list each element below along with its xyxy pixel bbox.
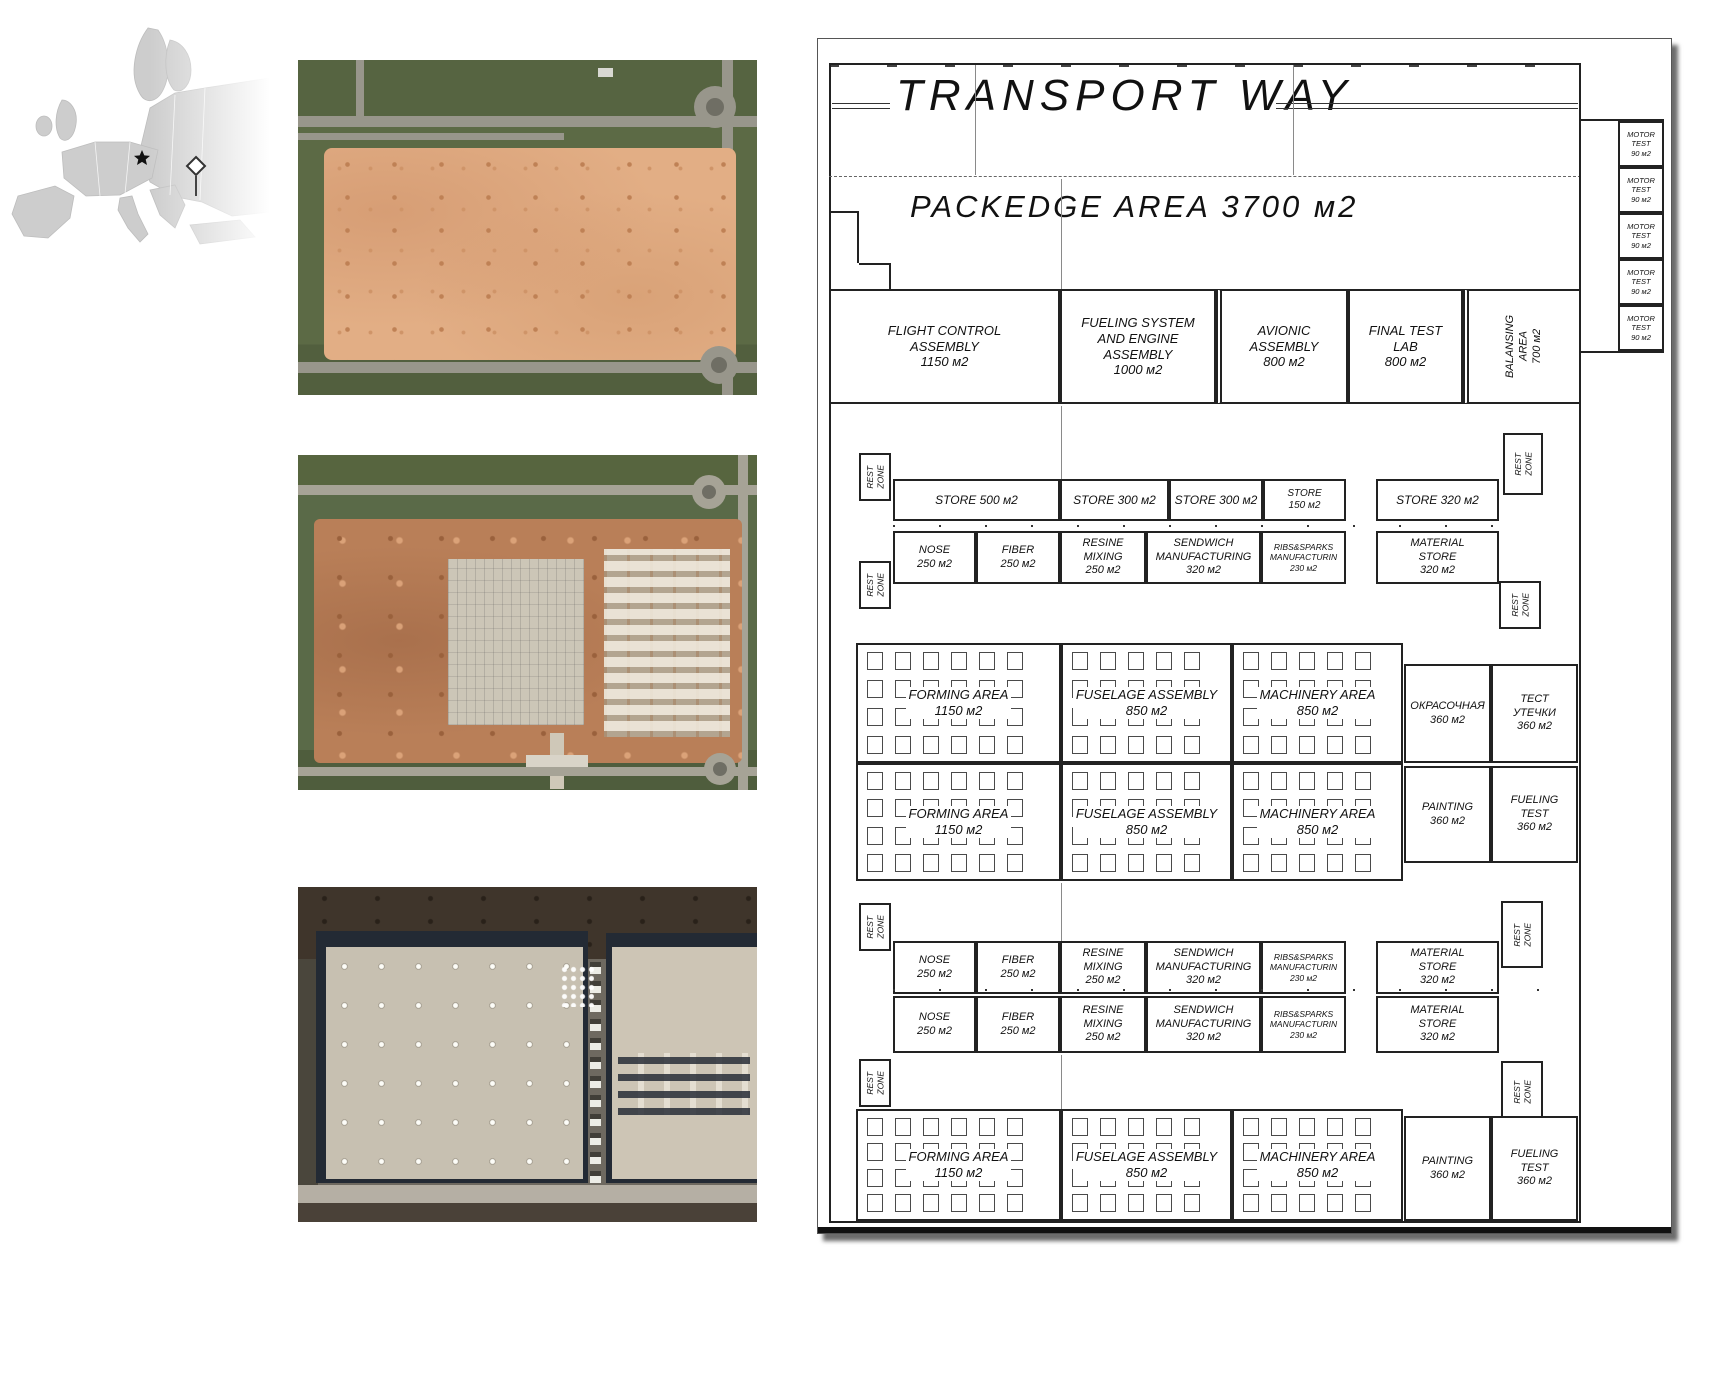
room-store-150: STORE 150 м2: [1263, 479, 1346, 521]
room-motor-test: MOTOR TEST 90 м2: [1618, 213, 1664, 259]
room-sendwich-manufacturing: SENDWICH MANUFACTURING 320 м2: [1146, 941, 1261, 994]
room-resine-mixing: RESINE MIXING 250 м2: [1060, 531, 1146, 584]
room-resine-mixing: RESINE MIXING 250 м2: [1060, 941, 1146, 994]
cleared-dirt-area: [324, 148, 736, 360]
road: [298, 767, 757, 776]
room-okrasochnaya: ОКРАСОЧНАЯ 360 м2: [1404, 664, 1491, 763]
room-motor-test: MOTOR TEST 90 м2: [1618, 259, 1664, 305]
roof-vents: [618, 1053, 750, 1115]
room-nose: NOSE 250 м2: [893, 996, 976, 1053]
wall-line: [1293, 65, 1294, 175]
roundabout: [700, 346, 738, 384]
room-motor-test: MOTOR TEST 90 м2: [1618, 121, 1664, 167]
room-fuselage-assembly: FUSELAGE ASSEMBLY 850 м2: [1061, 1109, 1232, 1221]
room-forming-area: FORMING AREA 1150 м2: [856, 763, 1061, 881]
site-buildings: [526, 755, 588, 767]
roundabout: [692, 475, 726, 509]
roundabout: [694, 86, 736, 128]
rest-zone: REST ZONE: [1503, 433, 1543, 495]
room-painting: PAINTING 360 м2: [1404, 766, 1491, 863]
wall-ticks: [829, 63, 1581, 67]
room-ribs-sparks-manufacturing: RIBS&SPARKS MANUFACTURIN 230 м2: [1261, 996, 1346, 1053]
rest-zone: REST ZONE: [1501, 1061, 1543, 1123]
wall-step: [859, 263, 891, 289]
satellite-photo-cleared-site: [298, 60, 757, 395]
rest-zone: REST ZONE: [859, 453, 891, 501]
rest-zone: REST ZONE: [859, 1059, 891, 1107]
room-material-store: MATERIAL STORE 320 м2: [1376, 531, 1499, 584]
room-motor-test: MOTOR TEST 90 м2: [1618, 167, 1664, 213]
rest-zone: REST ZONE: [859, 903, 891, 951]
pallet-stacks: [560, 965, 594, 1007]
room-sendwich-manufacturing: SENDWICH MANUFACTURING 320 м2: [1146, 996, 1261, 1053]
road: [298, 362, 757, 373]
road: [356, 60, 364, 120]
road: [298, 116, 757, 127]
small-building: [598, 68, 613, 77]
room-motor-test: MOTOR TEST 90 м2: [1618, 305, 1664, 351]
packedge-area-label: PACKEDGE AREA 3700 м2: [910, 189, 1270, 225]
satellite-photo-construction: [298, 455, 757, 790]
tree-line: [298, 959, 318, 1197]
room-ribs-sparks-manufacturing: RIBS&SPARKS MANUFACTURIN 230 м2: [1261, 941, 1346, 994]
europe-locator-map: [0, 0, 270, 255]
room-machinery-area: MACHINERY AREA 850 м2: [1232, 1109, 1403, 1221]
room-resine-mixing: RESINE MIXING 250 м2: [1060, 996, 1146, 1053]
room-store-320: STORE 320 м2: [1376, 479, 1499, 521]
room-store-500: STORE 500 м2: [893, 479, 1060, 521]
centerline: [1276, 103, 1578, 109]
room-fuselage-assembly: FUSELAGE ASSEMBLY 850 м2: [1061, 643, 1232, 763]
rest-zone: REST ZONE: [1501, 901, 1543, 968]
room-forming-area: FORMING AREA 1150 м2: [856, 643, 1061, 763]
room-painting: PAINTING 360 м2: [1404, 1116, 1491, 1221]
road: [298, 133, 564, 140]
centerline: [1061, 1055, 1062, 1109]
grid-dots: [893, 989, 1543, 991]
room-material-store: MATERIAL STORE 320 м2: [1376, 996, 1499, 1053]
room-final-test-lab: FINAL TEST LAB 800 м2: [1348, 289, 1463, 404]
warehouse-building-right: [606, 933, 757, 1183]
rest-zone: REST ZONE: [1499, 581, 1541, 629]
transport-way-label: TRANSPORT WAY: [896, 71, 1266, 121]
room-test-utechki: ТЕСТ УТЕЧКИ 360 м2: [1491, 664, 1578, 763]
centerline: [832, 103, 890, 109]
room-balansing-area: BALANSING AREA 700 м2: [1463, 289, 1581, 404]
warehouse-roof: [326, 947, 583, 1179]
room-nose: NOSE 250 м2: [893, 941, 976, 994]
room-fiber: FIBER 250 м2: [976, 996, 1060, 1053]
room-nose: NOSE 250 м2: [893, 531, 976, 584]
room-ribs-sparks-manufacturing: RIBS&SPARKS MANUFACTURIN 230 м2: [1261, 531, 1346, 584]
room-fueling-test: FUELING TEST 360 м2: [1491, 766, 1578, 863]
building-foundation: [448, 559, 584, 725]
room-flight-control-assembly: FLIGHT CONTROL ASSEMBLY 1150 м2: [829, 289, 1060, 404]
room-store-300: STORE 300 м2: [1060, 479, 1169, 521]
satellite-photo-completed-buildings: [298, 887, 757, 1222]
room-forming-area: FORMING AREA 1150 м2: [856, 1109, 1061, 1221]
roundabout: [704, 753, 736, 785]
factory-floor-plan: TRANSPORT WAY PACKEDGE AREA 3700 м2 FLIG…: [817, 38, 1672, 1234]
ground-line: [818, 1227, 1671, 1233]
wall-step: [829, 211, 859, 263]
warehouse-building-left: [316, 931, 588, 1183]
building-foundation: [604, 549, 730, 737]
centerline: [1061, 406, 1062, 479]
room-fiber: FIBER 250 м2: [976, 941, 1060, 994]
wall-line: [975, 65, 976, 175]
grid-dots: [893, 525, 1499, 527]
room-avionic-assembly: AVIONIC ASSEMBLY 800 м2: [1216, 289, 1348, 404]
corridor-dash-line: [829, 176, 1581, 177]
room-sendwich-manufacturing: SENDWICH MANUFACTURING 320 м2: [1146, 531, 1261, 584]
dark-ground: [298, 1203, 757, 1222]
room-fueling-system-engine-assembly: FUELING SYSTEM AND ENGINE ASSEMBLY 1000 …: [1060, 289, 1216, 404]
road: [298, 1185, 757, 1203]
room-fuselage-assembly: FUSELAGE ASSEMBLY 850 м2: [1061, 763, 1232, 881]
room-machinery-area: MACHINERY AREA 850 м2: [1232, 763, 1403, 881]
room-fiber: FIBER 250 м2: [976, 531, 1060, 584]
room-store-300: STORE 300 м2: [1169, 479, 1263, 521]
rest-zone: REST ZONE: [859, 561, 891, 609]
centerline: [1061, 883, 1062, 941]
road: [298, 485, 757, 495]
room-machinery-area: MACHINERY AREA 850 м2: [1232, 643, 1403, 763]
centerline: [1061, 179, 1062, 289]
room-fueling-test: FUELING TEST 360 м2: [1491, 1116, 1578, 1221]
room-material-store: MATERIAL STORE 320 м2: [1376, 941, 1499, 994]
